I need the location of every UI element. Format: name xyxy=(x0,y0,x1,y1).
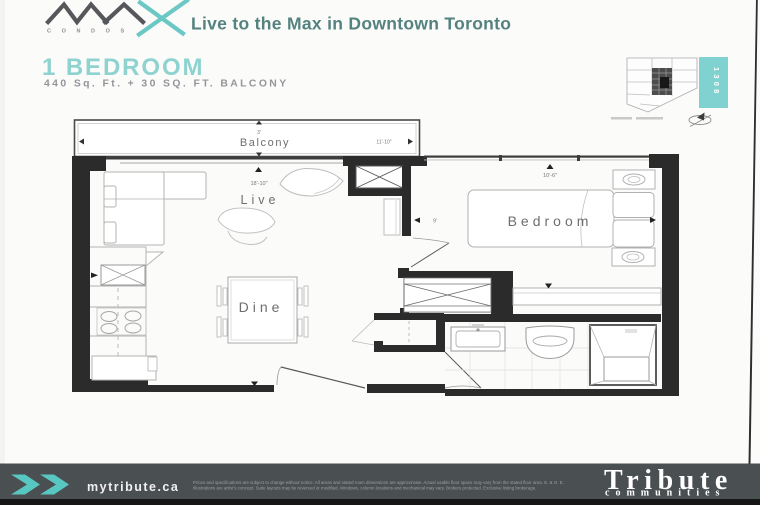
svg-text:9': 9' xyxy=(433,219,437,225)
svg-text:mytribute.ca: mytribute.ca xyxy=(87,480,179,494)
svg-text:Illustrations are artist's con: Illustrations are artist's concept. Suit… xyxy=(193,486,536,491)
svg-text:11'-10": 11'-10" xyxy=(376,140,391,146)
svg-text:CONDOS: CONDOS xyxy=(47,29,135,35)
svg-text:Bedroom: Bedroom xyxy=(508,213,593,229)
svg-text:communities: communities xyxy=(605,488,725,499)
svg-text:Prices and specifications are: Prices and specifications are subject to… xyxy=(193,480,564,485)
svg-text:10'-6": 10'-6" xyxy=(543,173,557,179)
svg-text:Balcony: Balcony xyxy=(240,137,290,149)
svg-text:1308: 1308 xyxy=(712,67,721,97)
svg-text:Live to the Max in Downtown To: Live to the Max in Downtown Toronto xyxy=(191,14,511,34)
svg-text:Live: Live xyxy=(241,193,280,207)
svg-text:18'-10": 18'-10" xyxy=(250,181,267,187)
svg-text:3': 3' xyxy=(257,130,261,136)
svg-text:440 Sq. Ft. + 30 SQ. FT. BALCO: 440 Sq. Ft. + 30 SQ. FT. BALCONY xyxy=(44,79,289,90)
svg-text:Dine: Dine xyxy=(239,299,284,315)
svg-text:1 BEDROOM: 1 BEDROOM xyxy=(42,54,204,81)
